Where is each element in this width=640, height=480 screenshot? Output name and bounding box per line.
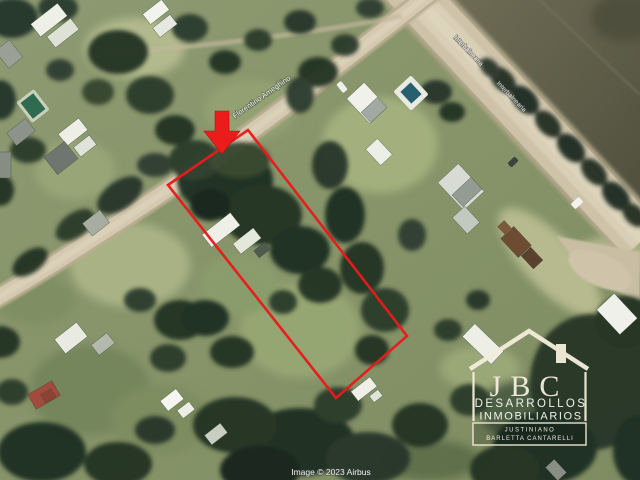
satellite-image: Florentino Ameghino Interbalnearia Inter… [0, 0, 640, 480]
logo-chimney [556, 344, 566, 363]
logo-footer-line2: BARLETTA CANTARELLI [486, 436, 573, 442]
imagery-attribution: Image © 2023 Airbus [291, 467, 371, 477]
logo-line1: DESARROLLOS [475, 398, 588, 410]
logo-footer-line1: JUSTINIANO [505, 428, 556, 434]
logo-line2: INMOBILIARIOS [479, 411, 582, 423]
house-roof [0, 152, 11, 178]
listing-photo: Florentino Ameghino Interbalnearia Inter… [0, 0, 640, 480]
